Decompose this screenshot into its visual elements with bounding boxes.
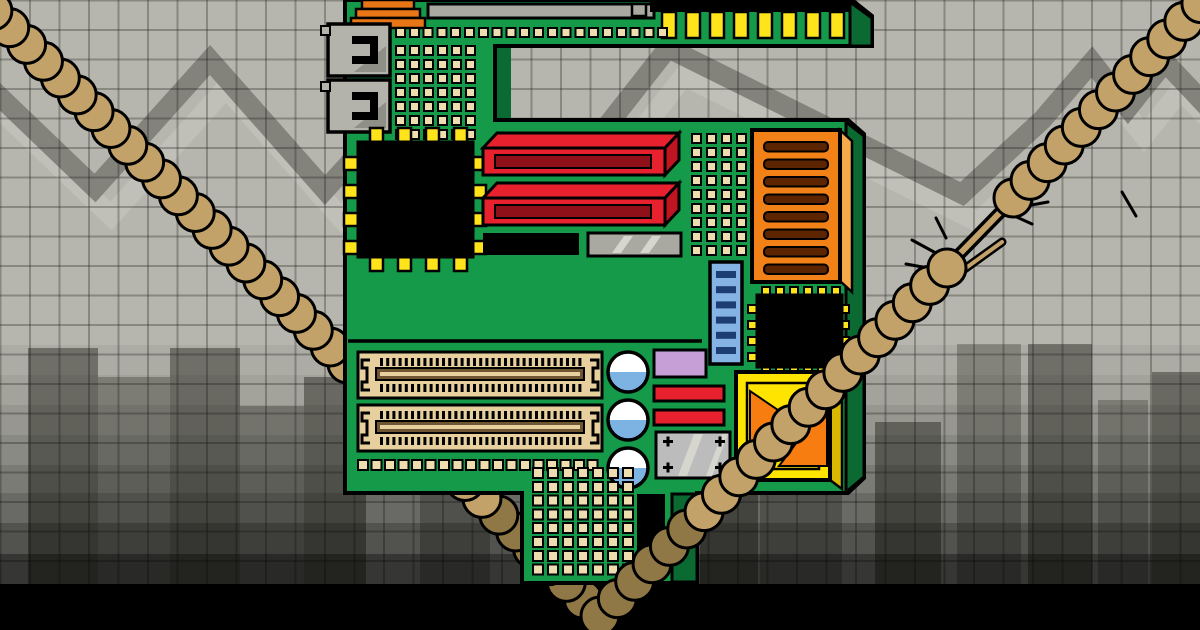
pin (541, 358, 544, 366)
pin (758, 12, 772, 38)
pin (523, 411, 526, 419)
pin (423, 411, 426, 419)
pin (516, 437, 519, 445)
pin (541, 411, 544, 419)
io-port-2-tab (321, 82, 330, 91)
pin (392, 384, 395, 392)
pin (380, 437, 383, 445)
pad (533, 537, 543, 547)
pin (504, 384, 507, 392)
pin (492, 437, 495, 445)
pin (392, 437, 395, 445)
pad (737, 148, 746, 157)
pin (504, 437, 507, 445)
pad (506, 28, 515, 37)
pin (547, 437, 550, 445)
pin (547, 384, 550, 392)
ram-bar-2-stripe (495, 205, 651, 218)
pad (452, 60, 461, 69)
pin (430, 358, 433, 366)
pad (493, 460, 503, 470)
pad (548, 551, 558, 561)
pad (563, 482, 573, 492)
pin (448, 384, 451, 392)
pin (716, 332, 736, 339)
pad (644, 28, 653, 37)
pad (623, 496, 633, 506)
illustration (0, 0, 1200, 630)
pin (473, 384, 476, 392)
pad (589, 28, 598, 37)
scene-svg (0, 0, 1200, 630)
pad (563, 565, 573, 575)
pad (563, 496, 573, 506)
pin (461, 411, 464, 419)
pad (533, 523, 543, 533)
pin (417, 411, 420, 419)
pad (466, 460, 476, 470)
pin (560, 411, 563, 419)
capacitor-1 (608, 352, 648, 392)
pin (380, 358, 383, 366)
pad (466, 74, 475, 83)
pad (410, 74, 419, 83)
pad (410, 88, 419, 97)
red-module-2 (654, 410, 724, 425)
pin (764, 177, 828, 187)
pad (548, 537, 558, 547)
pad (692, 190, 701, 199)
pin (572, 437, 575, 445)
pin (436, 384, 439, 392)
pad (452, 88, 461, 97)
pad (623, 482, 633, 492)
pad (424, 74, 433, 83)
pad (707, 176, 716, 185)
pci-slot-2-bar-inner (380, 425, 580, 429)
pad (452, 74, 461, 83)
pin (479, 358, 482, 366)
pad (533, 551, 543, 561)
pin (510, 411, 513, 419)
pin (535, 358, 538, 366)
pad (424, 28, 433, 37)
pin (541, 384, 544, 392)
pad (548, 496, 558, 506)
black-module (483, 233, 579, 255)
pad (707, 232, 716, 241)
pin (529, 411, 532, 419)
pad (737, 204, 746, 213)
pad (692, 246, 701, 255)
pad (548, 468, 558, 478)
pad (451, 28, 460, 37)
pin (386, 384, 389, 392)
pad (396, 74, 405, 83)
pin (448, 411, 451, 419)
pin (442, 384, 445, 392)
pin (485, 437, 488, 445)
pin (510, 358, 513, 366)
pad (722, 204, 731, 213)
pad (707, 190, 716, 199)
pad (533, 496, 543, 506)
pad (722, 218, 731, 227)
pad (608, 482, 618, 492)
pad (533, 565, 543, 575)
pin (417, 384, 420, 392)
pin (454, 411, 457, 419)
pad (563, 468, 573, 478)
pin (405, 437, 408, 445)
pin (423, 384, 426, 392)
pad (737, 232, 746, 241)
pad (593, 509, 603, 519)
purple-module (654, 350, 706, 377)
pin (442, 437, 445, 445)
pad (438, 46, 447, 55)
top-gray-bar (428, 4, 654, 18)
pin (504, 411, 507, 419)
pad (692, 218, 701, 227)
pad (578, 551, 588, 561)
pin (386, 358, 389, 366)
pad (608, 537, 618, 547)
ram-small-pad (632, 4, 646, 16)
pin (411, 437, 414, 445)
pad (396, 28, 405, 37)
pin (541, 437, 544, 445)
pin (386, 437, 389, 445)
pin (485, 358, 488, 366)
pin (386, 411, 389, 419)
pin (566, 384, 569, 392)
pin (454, 437, 457, 445)
pin (510, 437, 513, 445)
pad (466, 46, 475, 55)
pad (437, 28, 446, 37)
pin (535, 384, 538, 392)
pin (405, 411, 408, 419)
pad (575, 28, 584, 37)
chip2 (757, 295, 842, 367)
pad (533, 482, 543, 492)
pin (572, 411, 575, 419)
pad (410, 46, 419, 55)
pin (566, 437, 569, 445)
pin (529, 437, 532, 445)
pad (466, 116, 475, 125)
pad (737, 134, 746, 143)
pad (452, 46, 461, 55)
pad (578, 565, 588, 575)
pad (410, 28, 419, 37)
pad (617, 28, 626, 37)
pin (399, 358, 402, 366)
pin (554, 437, 557, 445)
battery-plus-2b (719, 437, 722, 447)
pad (479, 28, 488, 37)
pin (554, 411, 557, 419)
pin (405, 358, 408, 366)
pin (578, 437, 581, 445)
battery-plus-3b (667, 463, 670, 473)
pin (498, 384, 501, 392)
pad (707, 134, 716, 143)
pin (467, 358, 470, 366)
pad (578, 468, 588, 478)
io-port-1-tab (321, 26, 330, 35)
pin (380, 384, 383, 392)
pad (623, 468, 633, 478)
pin (764, 195, 828, 205)
pin (392, 411, 395, 419)
pad (578, 482, 588, 492)
pad (722, 176, 731, 185)
pad (608, 551, 618, 561)
pad (548, 523, 558, 533)
pin (498, 411, 501, 419)
pin (442, 411, 445, 419)
pad (548, 509, 558, 519)
pad (358, 460, 368, 470)
pin (417, 358, 420, 366)
pin (436, 411, 439, 419)
capacitor-2 (608, 400, 648, 440)
pad (593, 482, 603, 492)
pad (578, 509, 588, 519)
pad (480, 460, 490, 470)
pin (399, 437, 402, 445)
pin (764, 247, 828, 257)
pad (608, 509, 618, 519)
pad (507, 460, 517, 470)
pad (722, 134, 731, 143)
pad (548, 28, 557, 37)
pin (523, 358, 526, 366)
pad (707, 218, 716, 227)
pad (623, 537, 633, 547)
pad (534, 28, 543, 37)
pad (412, 460, 422, 470)
pad (438, 88, 447, 97)
pin (547, 411, 550, 419)
pin (430, 437, 433, 445)
pin (498, 358, 501, 366)
pad (424, 102, 433, 111)
pad (438, 102, 447, 111)
pin (392, 358, 395, 366)
pad (692, 232, 701, 241)
pin (473, 437, 476, 445)
pad (692, 148, 701, 157)
pin (454, 358, 457, 366)
pin (492, 384, 495, 392)
pad (438, 116, 447, 125)
pin (566, 411, 569, 419)
pin (411, 358, 414, 366)
pin (473, 411, 476, 419)
pad (692, 134, 701, 143)
pad (399, 460, 409, 470)
pad (631, 28, 640, 37)
pin (485, 411, 488, 419)
pin (578, 384, 581, 392)
pad (466, 88, 475, 97)
rope-segment (928, 249, 966, 287)
pin (560, 437, 563, 445)
pin (560, 358, 563, 366)
pad (439, 460, 449, 470)
pad (608, 468, 618, 478)
pad (424, 116, 433, 125)
pin (523, 437, 526, 445)
pad (722, 246, 731, 255)
pin (479, 437, 482, 445)
pad (563, 551, 573, 561)
pin (467, 384, 470, 392)
pad (533, 509, 543, 519)
pin (516, 411, 519, 419)
pin (405, 384, 408, 392)
pad (707, 204, 716, 213)
pin (566, 358, 569, 366)
pin (473, 358, 476, 366)
pin (806, 12, 820, 38)
pin (461, 384, 464, 392)
pad (623, 551, 633, 561)
pad (737, 246, 746, 255)
pin (764, 265, 828, 275)
pad (452, 116, 461, 125)
pin (547, 358, 550, 366)
pin (716, 317, 736, 324)
pin (578, 411, 581, 419)
pin (448, 358, 451, 366)
pad (578, 496, 588, 506)
pin (710, 12, 724, 38)
orange-capacitor-top-2 (356, 9, 420, 18)
pad (438, 74, 447, 83)
pad (578, 537, 588, 547)
pad (722, 162, 731, 171)
pin (423, 358, 426, 366)
pad (396, 60, 405, 69)
pad (452, 102, 461, 111)
pad (385, 460, 395, 470)
pci-slot-1-bar-inner (380, 372, 580, 376)
pad (372, 460, 382, 470)
pin (479, 384, 482, 392)
pad (707, 148, 716, 157)
pad (593, 468, 603, 478)
pin (764, 212, 828, 222)
pin (504, 358, 507, 366)
pin (436, 358, 439, 366)
pin (430, 411, 433, 419)
pad (593, 537, 603, 547)
pad (707, 162, 716, 171)
pin (529, 358, 532, 366)
pin (442, 358, 445, 366)
pad (737, 218, 746, 227)
pad (658, 28, 667, 37)
pad (424, 60, 433, 69)
ram-bar-1-stripe (495, 155, 651, 168)
pin (716, 286, 736, 293)
pad (466, 60, 475, 69)
pad (410, 102, 419, 111)
pin (734, 12, 748, 38)
pin (479, 411, 482, 419)
pin (535, 411, 538, 419)
pin (510, 384, 513, 392)
pad (548, 482, 558, 492)
gray-module (588, 233, 681, 256)
pad (424, 46, 433, 55)
pad (465, 28, 474, 37)
pad (453, 460, 463, 470)
pin (764, 142, 828, 152)
pin (380, 411, 383, 419)
pin (492, 358, 495, 366)
battery-plus-1b (667, 437, 670, 447)
pin (686, 12, 700, 38)
pad (396, 88, 405, 97)
pin (516, 384, 519, 392)
pin (716, 301, 736, 308)
pad (608, 496, 618, 506)
pin (764, 230, 828, 240)
pad (593, 551, 603, 561)
pad (593, 496, 603, 506)
pin (492, 411, 495, 419)
pin (461, 437, 464, 445)
pad (692, 204, 701, 213)
pin (485, 384, 488, 392)
pin (498, 437, 501, 445)
pin (572, 358, 575, 366)
cpu-chip (358, 142, 473, 257)
pin (430, 384, 433, 392)
pin (578, 358, 581, 366)
pad (563, 509, 573, 519)
pin (461, 358, 464, 366)
pin (529, 384, 532, 392)
pin (411, 384, 414, 392)
pin (436, 437, 439, 445)
pin (411, 411, 414, 419)
pin (572, 384, 575, 392)
pad (493, 28, 502, 37)
pad (563, 537, 573, 547)
pad (438, 60, 447, 69)
pin (560, 384, 563, 392)
pin (782, 12, 796, 38)
pin (764, 160, 828, 170)
pin (516, 358, 519, 366)
heatsink (752, 130, 840, 282)
pad (562, 28, 571, 37)
pad (410, 116, 419, 125)
ram-bar-2-top (483, 183, 679, 198)
pad (623, 509, 633, 519)
pad (548, 565, 558, 575)
pad (533, 468, 543, 478)
pad (623, 523, 633, 533)
ram-bar-1-top (483, 133, 679, 148)
pad (692, 162, 701, 171)
